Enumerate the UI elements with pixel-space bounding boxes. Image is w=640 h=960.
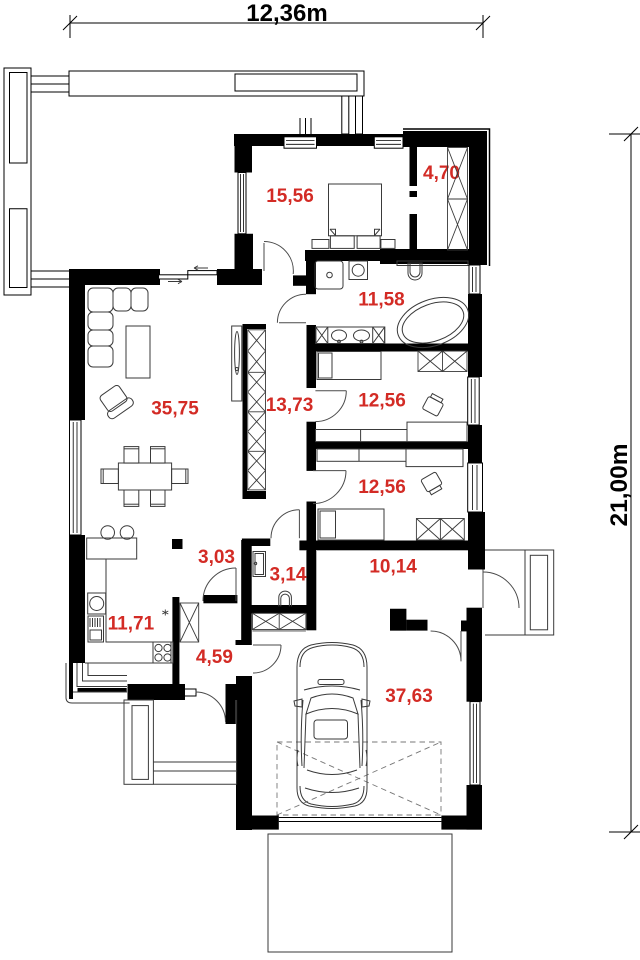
svg-text:11,58: 11,58: [358, 290, 405, 311]
svg-text:13,73: 13,73: [266, 395, 314, 416]
svg-text:12,56: 12,56: [358, 391, 406, 412]
svg-text:35,75: 35,75: [151, 399, 199, 420]
svg-text:12,56: 12,56: [358, 477, 406, 498]
svg-text:10,14: 10,14: [369, 557, 417, 578]
svg-text:4,59: 4,59: [196, 647, 233, 668]
svg-text:12,36m: 12,36m: [246, 0, 327, 27]
svg-text:11,71: 11,71: [108, 614, 155, 635]
svg-text:15,56: 15,56: [266, 186, 314, 207]
svg-text:21,00m: 21,00m: [606, 443, 633, 526]
svg-text:37,63: 37,63: [385, 686, 433, 707]
svg-text:3,03: 3,03: [198, 547, 235, 568]
svg-text:3,14: 3,14: [270, 565, 307, 586]
